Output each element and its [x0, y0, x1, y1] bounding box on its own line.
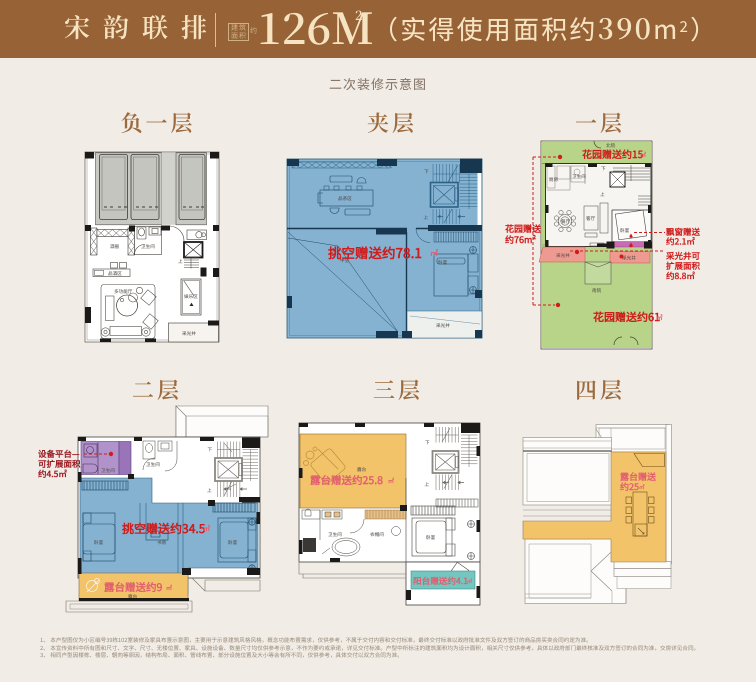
svg-text:露台赠送约25.8: 露台赠送约25.8	[310, 473, 383, 488]
svg-text:㎡: ㎡	[430, 248, 438, 259]
svg-text:品酒区: 品酒区	[108, 271, 122, 277]
svg-text:挑空赠送约78.1: 挑空赠送约78.1	[328, 242, 422, 262]
svg-text:露台赠送约9: 露台赠送约9	[104, 580, 162, 595]
svg-text:多功能厅: 多功能厅	[114, 289, 133, 295]
svg-text:卧室: 卧室	[228, 540, 238, 546]
svg-text:酒窖: 酒窖	[110, 244, 120, 250]
svg-text:卧室: 卧室	[620, 228, 630, 234]
svg-text:采光井: 采光井	[436, 323, 450, 329]
svg-text:下: 下	[601, 166, 606, 172]
svg-text:约76m²: 约76m²	[505, 233, 536, 246]
svg-text:客厅: 客厅	[586, 216, 596, 222]
svg-text:约8.8㎡: 约8.8㎡	[666, 270, 695, 282]
svg-text:㎡: ㎡	[166, 583, 172, 592]
svg-text:品茶区: 品茶区	[338, 196, 352, 202]
svg-text:上: 上	[600, 192, 605, 198]
svg-text:卧室: 卧室	[438, 260, 448, 266]
svg-text:㎡: ㎡	[203, 524, 210, 534]
svg-text:下: 下	[208, 447, 213, 453]
svg-text:采光井: 采光井	[622, 256, 636, 262]
svg-text:卧室: 卧室	[94, 540, 104, 546]
svg-text:餐厅: 餐厅	[561, 219, 571, 225]
svg-text:卫生间: 卫生间	[101, 468, 115, 474]
svg-text:卫生间: 卫生间	[141, 244, 155, 250]
svg-text:㎡: ㎡	[656, 312, 663, 322]
svg-text:约2.1㎡: 约2.1㎡	[666, 236, 695, 248]
svg-text:南院: 南院	[592, 288, 602, 294]
svg-text:上: 上	[425, 482, 430, 488]
svg-text:娱乐区: 娱乐区	[184, 294, 198, 300]
svg-text:花园赠送约15: 花园赠送约15	[582, 146, 644, 161]
svg-text:挑空赠送约34.5: 挑空赠送约34.5	[122, 520, 206, 537]
svg-text:上: 上	[207, 488, 212, 494]
svg-text:㎡: ㎡	[640, 150, 646, 159]
svg-text:衣帽间: 衣帽间	[370, 532, 384, 538]
svg-text:上: 上	[178, 259, 183, 265]
svg-text:阳台赠送约4.1: 阳台赠送约4.1	[413, 575, 468, 587]
svg-text:下: 下	[425, 440, 430, 446]
svg-text:卧室: 卧室	[426, 535, 436, 541]
svg-text:㎡: ㎡	[467, 578, 472, 585]
svg-text:上: 上	[424, 215, 429, 221]
svg-text:书房: 书房	[157, 540, 167, 546]
svg-text:约4.5㎡: 约4.5㎡	[38, 468, 67, 480]
svg-text:花园赠送约61: 花园赠送约61	[593, 309, 660, 325]
svg-text:卫生间: 卫生间	[328, 532, 342, 538]
svg-text:厨房: 厨房	[549, 177, 559, 183]
svg-text:下: 下	[424, 169, 429, 175]
svg-text:采光井: 采光井	[556, 253, 570, 259]
svg-text:卫生间: 卫生间	[146, 462, 160, 468]
svg-text:㎡: ㎡	[388, 476, 394, 485]
svg-text:卫生间: 卫生间	[572, 174, 586, 180]
svg-text:采光井: 采光井	[182, 331, 196, 337]
